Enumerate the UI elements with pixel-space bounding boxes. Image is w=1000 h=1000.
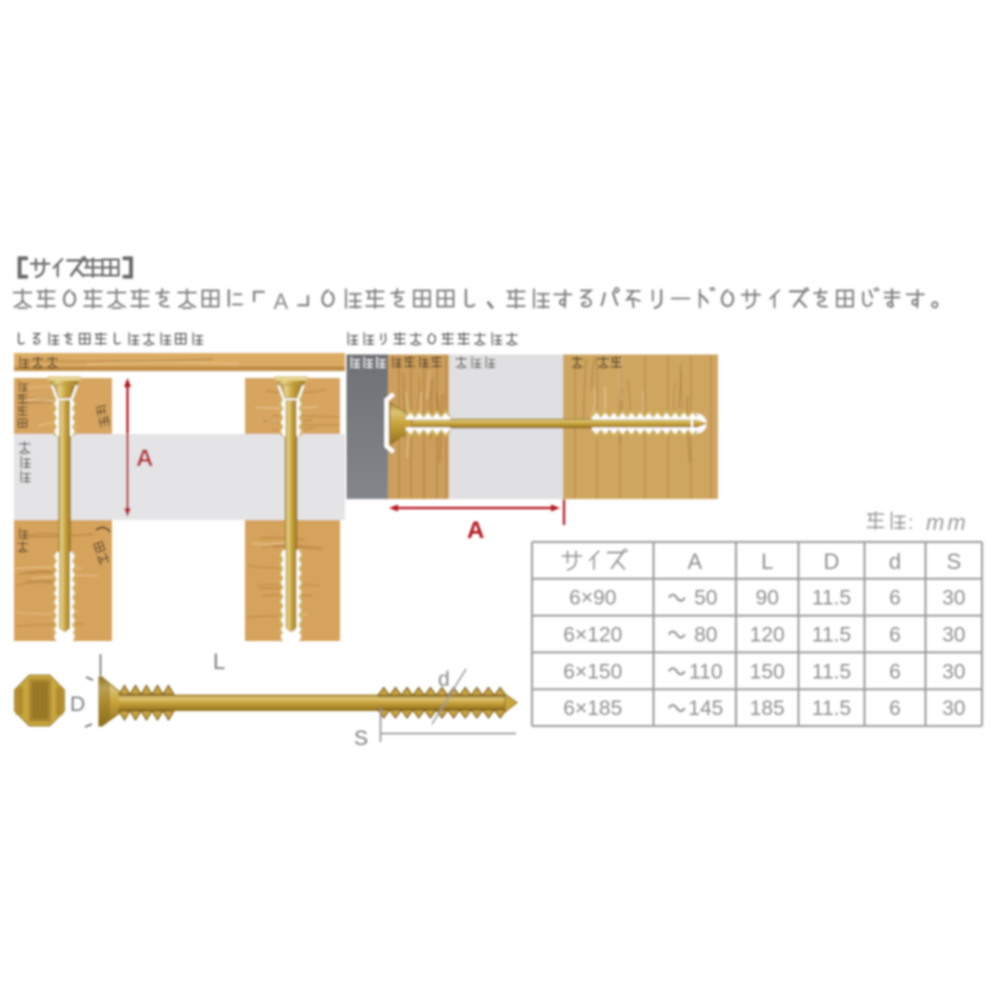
- svg-text:11.5: 11.5: [812, 697, 851, 720]
- svg-text:80: 80: [694, 624, 717, 647]
- svg-text:6: 6: [889, 697, 901, 720]
- svg-text:110: 110: [689, 660, 722, 683]
- svg-text:150: 150: [750, 660, 785, 683]
- svg-text:D: D: [824, 549, 840, 574]
- svg-text:6×150: 6×150: [563, 660, 622, 683]
- svg-text:30: 30: [942, 660, 965, 683]
- svg-text:11.5: 11.5: [812, 660, 851, 683]
- svg-text:11.5: 11.5: [812, 624, 851, 647]
- svg-text:6×120: 6×120: [563, 624, 622, 647]
- svg-text:A: A: [136, 445, 153, 472]
- svg-text:185: 185: [750, 697, 785, 720]
- svg-text:11.5: 11.5: [812, 587, 851, 610]
- svg-text:S: S: [946, 549, 961, 574]
- svg-text:A: A: [687, 549, 702, 574]
- svg-text:30: 30: [942, 697, 965, 720]
- svg-text:L: L: [761, 549, 773, 574]
- svg-text:6×185: 6×185: [563, 697, 622, 720]
- svg-text:d: d: [438, 668, 450, 691]
- svg-text:50: 50: [694, 587, 717, 610]
- svg-text:S: S: [354, 727, 368, 750]
- svg-text:30: 30: [942, 624, 965, 647]
- svg-text:D: D: [70, 693, 85, 716]
- svg-text::: :: [908, 513, 913, 534]
- svg-text:6: 6: [889, 587, 901, 610]
- svg-text:mm: mm: [926, 510, 969, 535]
- svg-text:6: 6: [889, 660, 901, 683]
- svg-text:120: 120: [750, 624, 785, 647]
- svg-text:A: A: [467, 517, 484, 544]
- svg-text:6: 6: [889, 624, 901, 647]
- svg-text:90: 90: [756, 587, 779, 610]
- svg-text:6×90: 6×90: [569, 587, 616, 610]
- svg-text:d: d: [889, 549, 901, 574]
- svg-text:145: 145: [688, 697, 723, 720]
- svg-text:A: A: [274, 289, 289, 314]
- svg-text:L: L: [213, 649, 225, 674]
- svg-text:30: 30: [942, 587, 965, 610]
